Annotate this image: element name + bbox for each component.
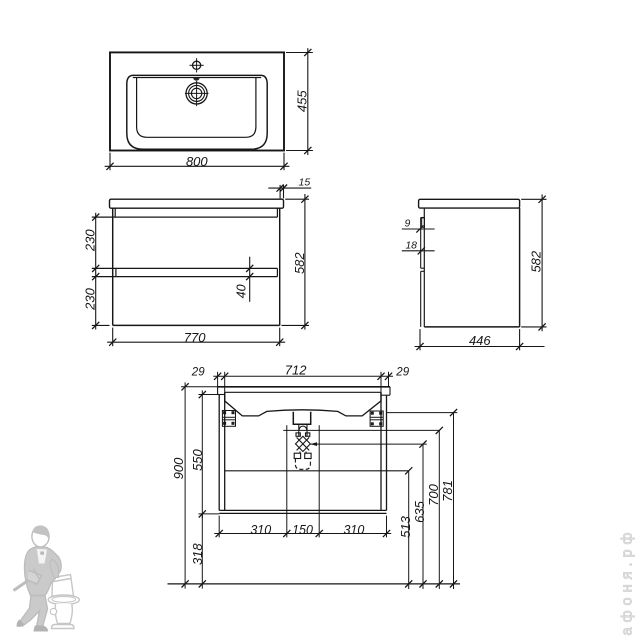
- svg-text:40: 40: [235, 284, 249, 298]
- svg-text:700: 700: [426, 483, 441, 505]
- svg-text:150: 150: [292, 523, 313, 537]
- svg-text:712: 712: [285, 363, 307, 378]
- svg-text:15: 15: [299, 177, 311, 189]
- svg-text:29: 29: [191, 366, 205, 378]
- svg-text:афоня.рф: афоня.рф: [620, 528, 636, 636]
- svg-text:513: 513: [398, 515, 413, 537]
- svg-text:781: 781: [440, 480, 455, 502]
- svg-text:230: 230: [82, 287, 97, 310]
- svg-text:18: 18: [405, 239, 417, 251]
- svg-text:582: 582: [529, 250, 544, 272]
- svg-text:310: 310: [250, 523, 271, 537]
- svg-text:446: 446: [469, 333, 491, 348]
- svg-text:582: 582: [292, 252, 307, 274]
- svg-text:310: 310: [343, 523, 364, 537]
- svg-text:770: 770: [184, 330, 206, 345]
- svg-text:318: 318: [190, 543, 205, 565]
- svg-text:550: 550: [190, 448, 205, 470]
- svg-text:230: 230: [82, 229, 97, 252]
- svg-text:800: 800: [186, 154, 208, 169]
- svg-text:29: 29: [395, 366, 409, 378]
- svg-text:900: 900: [171, 457, 186, 479]
- svg-text:455: 455: [294, 90, 309, 112]
- svg-text:9: 9: [404, 218, 410, 230]
